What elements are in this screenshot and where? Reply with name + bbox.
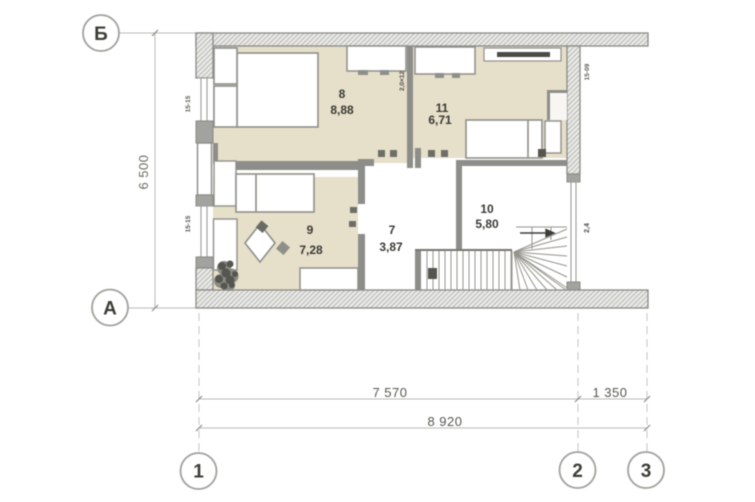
- svg-text:8,88: 8,88: [330, 103, 354, 117]
- svg-text:7 570: 7 570: [372, 385, 407, 400]
- svg-text:6 500: 6 500: [136, 154, 151, 189]
- svg-text:1 350: 1 350: [592, 385, 627, 400]
- svg-text:15-15: 15-15: [185, 95, 192, 112]
- svg-text:8: 8: [339, 87, 346, 101]
- svg-text:2,0×12: 2,0×12: [399, 71, 406, 91]
- svg-text:5,80: 5,80: [475, 217, 499, 231]
- svg-text:3,87: 3,87: [379, 240, 403, 254]
- svg-text:8 920: 8 920: [427, 414, 462, 429]
- svg-text:15-09: 15-09: [584, 63, 591, 80]
- svg-text:Б: Б: [94, 24, 108, 45]
- svg-text:3: 3: [641, 461, 652, 482]
- svg-text:10: 10: [480, 202, 494, 216]
- svg-text:2: 2: [572, 461, 583, 482]
- svg-text:2,4: 2,4: [584, 223, 591, 233]
- svg-text:15-15: 15-15: [185, 215, 192, 232]
- svg-text:7: 7: [389, 223, 396, 237]
- svg-text:9: 9: [307, 223, 314, 237]
- svg-text:6,71: 6,71: [428, 113, 452, 127]
- svg-text:7,28: 7,28: [299, 243, 323, 257]
- svg-text:1: 1: [193, 462, 204, 483]
- svg-text:А: А: [103, 299, 117, 320]
